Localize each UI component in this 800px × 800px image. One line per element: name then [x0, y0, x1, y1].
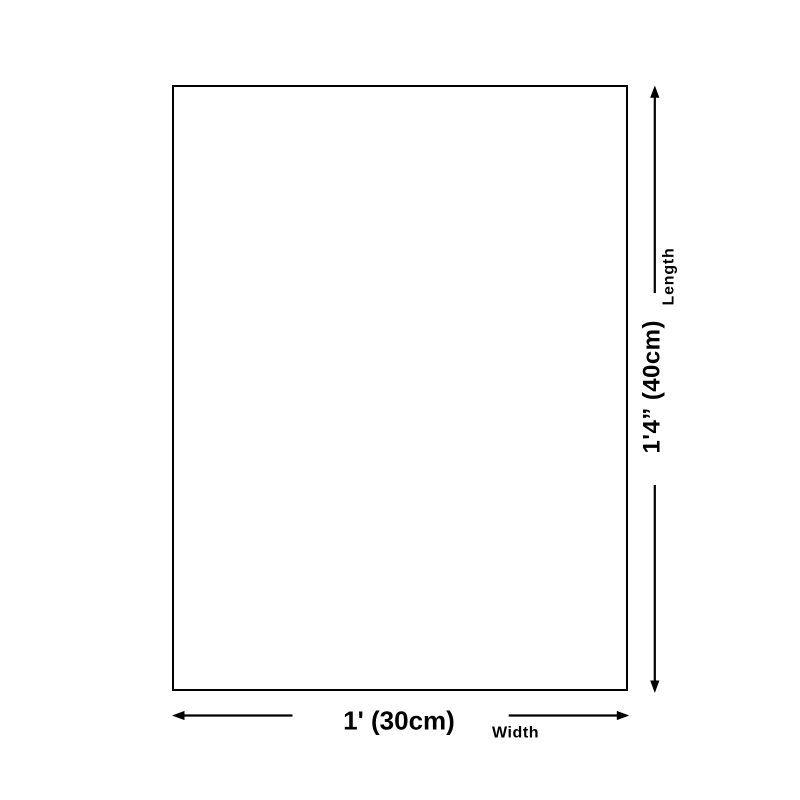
svg-text:1' (30cm): 1' (30cm) — [343, 705, 455, 735]
svg-text:Length: Length — [661, 247, 678, 305]
svg-text:1'4” (40cm): 1'4” (40cm) — [639, 320, 666, 453]
svg-text:Width: Width — [492, 725, 539, 742]
